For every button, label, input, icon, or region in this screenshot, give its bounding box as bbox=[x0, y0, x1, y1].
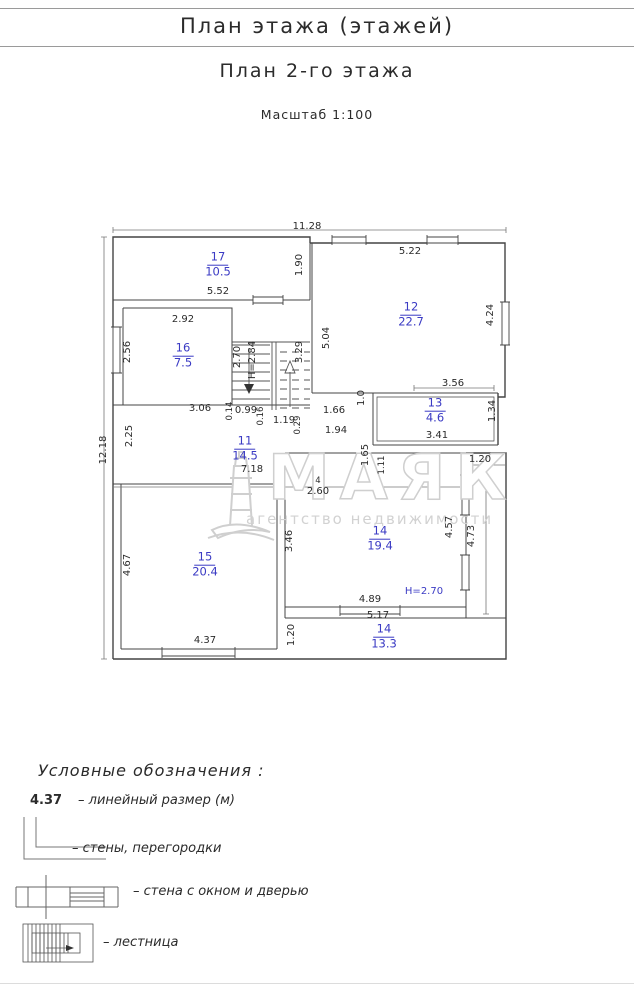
page-title: План этажа (этажей) bbox=[0, 14, 634, 38]
floor-plan: МАЯК агентство недвижимости 11.285.522.9… bbox=[98, 222, 522, 672]
dimension-label: 2.70 bbox=[233, 346, 243, 368]
room-area: 10.5 bbox=[205, 266, 231, 280]
bottom-rule bbox=[0, 983, 634, 984]
room-number: 12 bbox=[401, 301, 422, 316]
dimension-label: 4 bbox=[315, 477, 320, 486]
dimension-label: 11.28 bbox=[293, 222, 322, 232]
room-label: 134.6 bbox=[425, 397, 446, 426]
dimension-lines bbox=[101, 227, 506, 659]
dimension-label: 0.16 bbox=[257, 407, 266, 426]
scale-label: Масштаб 1:100 bbox=[0, 107, 634, 122]
dimension-label: 5.17 bbox=[367, 611, 389, 621]
window-icon bbox=[332, 235, 366, 245]
dimension-label: 0.14 bbox=[226, 402, 235, 421]
dimension-label: 4.57 bbox=[445, 516, 455, 538]
room-number: 16 bbox=[173, 342, 194, 357]
dimension-label: 1.65 bbox=[361, 444, 371, 466]
floor-subtitle: План 2-го этажа bbox=[0, 60, 634, 82]
dimension-label: 2.25 bbox=[125, 425, 135, 447]
room-number: 17 bbox=[208, 251, 229, 266]
dimension-label: 3.41 bbox=[426, 431, 448, 441]
legend-item-label: – стены, перегородки bbox=[72, 841, 221, 856]
room-number: 15 bbox=[195, 551, 216, 566]
room-label: 1114.5 bbox=[232, 435, 258, 464]
room-number: 13 bbox=[425, 397, 446, 412]
room-area: 19.4 bbox=[367, 540, 393, 554]
window-icon bbox=[500, 302, 510, 345]
dimension-label: 4.73 bbox=[467, 525, 477, 547]
window-door-wall-symbol bbox=[14, 873, 124, 919]
room-area: 4.6 bbox=[426, 412, 444, 426]
room-area: 14.5 bbox=[232, 450, 258, 464]
room-number: 11 bbox=[235, 435, 256, 450]
dimension-label: 5.04 bbox=[322, 327, 332, 349]
dimension-label: 7.18 bbox=[241, 465, 263, 475]
dimension-label: 1.90 bbox=[295, 254, 305, 276]
stairs-symbol bbox=[22, 921, 98, 965]
dimension-label: 3.46 bbox=[285, 530, 295, 552]
dimension-label: 3.56 bbox=[442, 379, 464, 389]
legend-title: Условные обозначения : bbox=[38, 761, 265, 780]
legend: Условные обозначения : 4.37 – линейный р… bbox=[0, 755, 634, 985]
room-label: 1419.4 bbox=[367, 525, 393, 554]
room-label: 1413.3 bbox=[371, 623, 397, 652]
legend-item-label: – лестница bbox=[103, 935, 178, 950]
dimension-label: 5.52 bbox=[207, 287, 229, 297]
room-number: 14 bbox=[374, 623, 395, 638]
dimension-label: 1.0 bbox=[357, 390, 367, 406]
dimension-label: 1.94 bbox=[325, 426, 347, 436]
inner-walls bbox=[113, 243, 506, 649]
room-number: 14 bbox=[370, 525, 391, 540]
window-icon bbox=[253, 295, 283, 305]
dimension-label: 0.29 bbox=[294, 416, 303, 435]
legend-item-label: – линейный размер (м) bbox=[78, 793, 235, 808]
dimension-label: 4.24 bbox=[486, 304, 496, 326]
legend-item-label: – стена с окном и дверью bbox=[133, 884, 309, 899]
room-label: 1520.4 bbox=[192, 551, 218, 580]
window-icon bbox=[111, 327, 122, 373]
dimension-label: 2.92 bbox=[172, 315, 194, 325]
floor-plan-drawing bbox=[98, 222, 522, 672]
dimension-label: 4.37 bbox=[194, 636, 216, 646]
dimension-label: 1.66 bbox=[323, 406, 345, 416]
window-icon bbox=[460, 475, 470, 515]
window-icon bbox=[460, 555, 470, 590]
dimension-label: 3.06 bbox=[189, 404, 211, 414]
dimension-label: 1.11 bbox=[378, 456, 387, 475]
window-icon bbox=[162, 647, 235, 658]
dimension-label: 3.29 bbox=[295, 341, 305, 363]
room-area: 22.7 bbox=[398, 316, 424, 330]
legend-dimension-example: 4.37 bbox=[30, 793, 62, 808]
stairs-up-arrow-icon bbox=[285, 361, 295, 407]
dimension-label: 1.34 bbox=[488, 400, 498, 422]
dimension-label: 0.99 bbox=[235, 406, 257, 416]
dimension-label: 2.56 bbox=[123, 341, 133, 363]
dimension-label: 1.20 bbox=[287, 624, 297, 646]
title-rule bbox=[0, 46, 634, 47]
dimension-label: 4.67 bbox=[123, 554, 133, 576]
room-area: 7.5 bbox=[174, 357, 192, 371]
dimension-label: 4.89 bbox=[359, 595, 381, 605]
window-icon bbox=[427, 235, 458, 245]
room-area: 20.4 bbox=[192, 566, 218, 580]
dimension-label: H=2.70 bbox=[405, 587, 443, 597]
dimension-label: H=2.84 bbox=[248, 341, 258, 379]
room-label: 1710.5 bbox=[205, 251, 231, 280]
dimension-label: 1.20 bbox=[469, 455, 491, 465]
room-label: 167.5 bbox=[173, 342, 194, 371]
dimension-label: 2.60 bbox=[307, 487, 329, 497]
dimension-label: 5.22 bbox=[399, 247, 421, 257]
dimension-label: 12.18 bbox=[99, 436, 109, 465]
room-area: 13.3 bbox=[371, 638, 397, 652]
room-label: 1222.7 bbox=[398, 301, 424, 330]
top-rule bbox=[0, 8, 634, 9]
